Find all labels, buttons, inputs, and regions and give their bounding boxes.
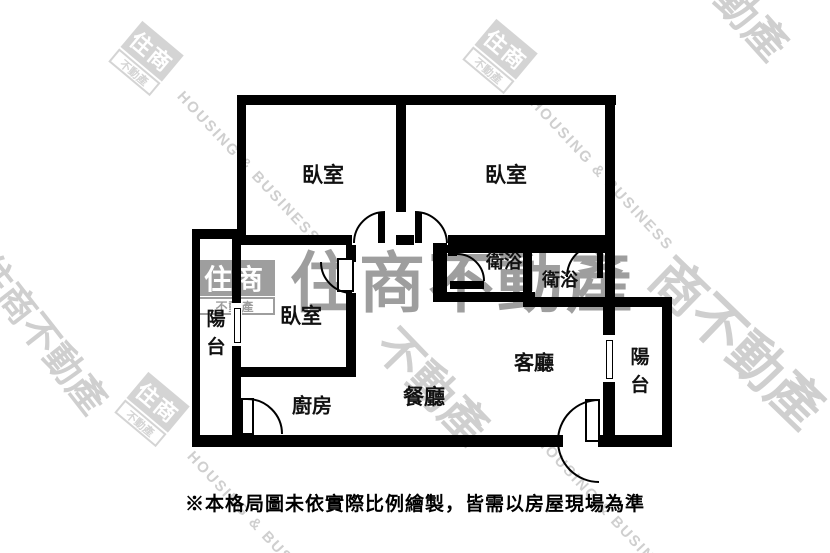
label-balcony-left: 陽台 [205,306,227,361]
window [234,308,241,343]
door-leaf [450,281,484,289]
window [606,340,613,379]
label-bath-1: 衛浴 [486,248,522,274]
label-bedroom-2: 臥室 [485,159,527,189]
label-kitchen: 廚房 [292,390,332,419]
door-swing [457,254,484,281]
floor-plan-page: 住商 不動產 住商 不動產 住商 不動產 HOUSING & BUSINESS … [0,0,830,553]
disclaimer-note: ※本格局圖未依實際比例繪製，皆需以房屋現場為準 [0,489,830,516]
door-leaf [242,399,253,434]
label-bedroom-3: 臥室 [280,300,322,330]
door-leaf [597,243,603,278]
door-leaf [415,212,422,243]
label-bedroom-1: 臥室 [302,159,344,189]
door-leaf [338,259,353,291]
door-leaf [378,212,385,243]
label-balcony-right: 陽台 [629,344,651,399]
label-bath-2: 衛浴 [542,266,578,292]
door-layer [0,0,830,553]
label-living: 客廳 [514,347,554,376]
door-leaf [586,400,599,441]
label-dining: 餐廳 [403,381,445,411]
